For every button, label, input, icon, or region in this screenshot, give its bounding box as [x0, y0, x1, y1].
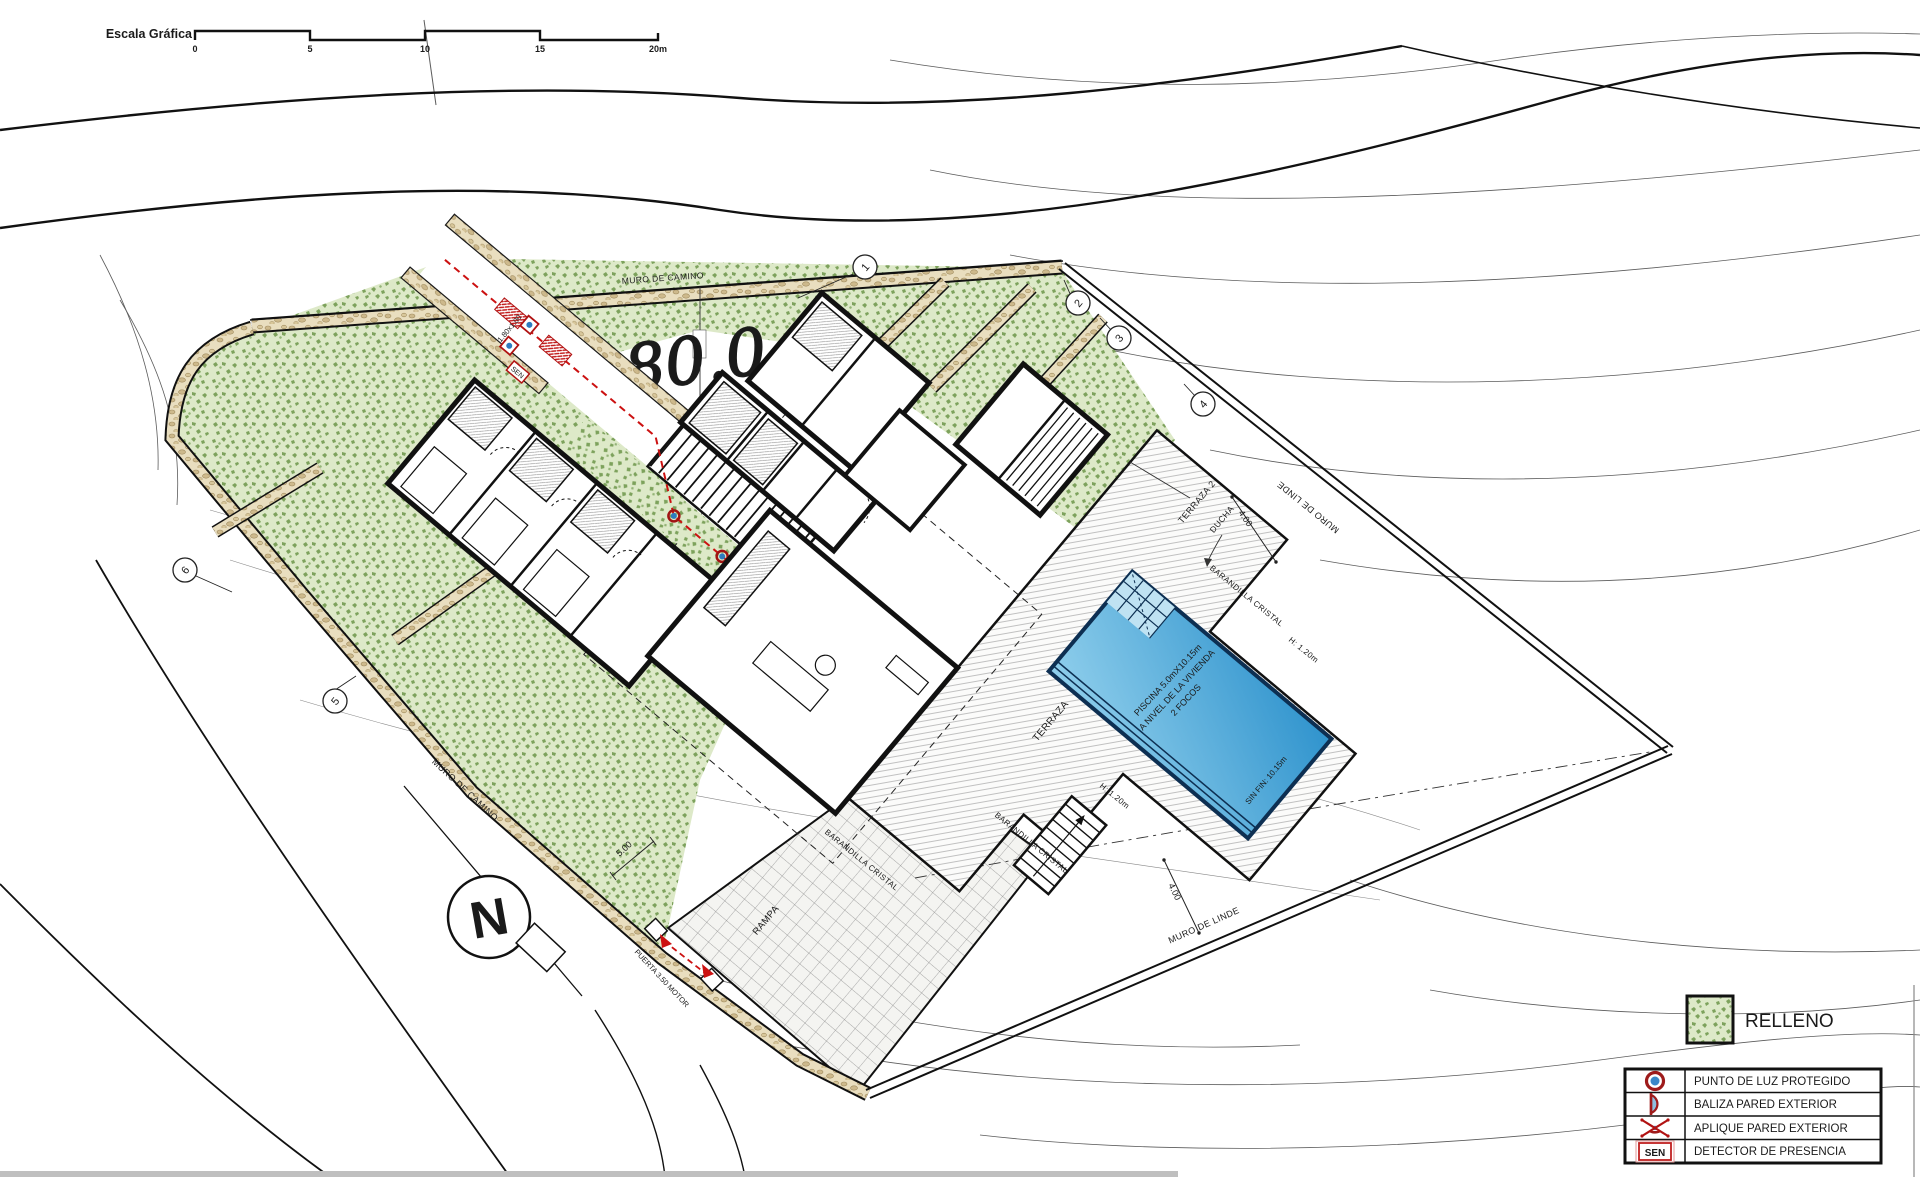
muro-linde-right: MURO DE LINDE [1275, 479, 1341, 535]
scale-bar-title: Escala Gráfica [106, 27, 193, 41]
legend-row-label: DETECTOR DE PRESENCIA [1694, 1146, 1846, 1158]
dim-4-bottom: 4.00 [1166, 882, 1183, 902]
drawing-page: 280.0 SEN 1.80x1.00 [0, 0, 1920, 1177]
legend-row-label: PUNTO DE LUZ PROTEGIDO [1694, 1076, 1850, 1088]
svg-text:SEN: SEN [1645, 1148, 1666, 1159]
svg-text:0: 0 [192, 44, 197, 54]
svg-text:10: 10 [420, 44, 430, 54]
legend-row-label: BALIZA PARED EXTERIOR [1694, 1099, 1837, 1111]
scale-bar: Escala Gráfica 0 5 10 15 20m [106, 27, 667, 54]
road-lines [0, 46, 1920, 1177]
svg-text:5: 5 [307, 44, 312, 54]
legend-relleno: RELLENO [1687, 996, 1834, 1043]
legend-row-label: APLIQUE PARED EXTERIOR [1694, 1123, 1848, 1135]
svg-text:20m: 20m [649, 44, 667, 54]
relleno-swatch [1687, 996, 1733, 1043]
svg-text:15: 15 [535, 44, 545, 54]
muro-linde-bottom: MURO DE LINDE [1167, 905, 1241, 945]
site-plan-canvas: 280.0 SEN 1.80x1.00 [0, 0, 1920, 1177]
presence-detector-icon: SEN [1636, 1141, 1674, 1162]
barandilla-height-1: H: 1.20m [1287, 635, 1320, 664]
legend-table: SEN PUNTO DE LUZ PROTEGIDO BALIZA PARED … [1625, 1069, 1881, 1163]
relleno-label: RELLENO [1745, 1011, 1834, 1032]
